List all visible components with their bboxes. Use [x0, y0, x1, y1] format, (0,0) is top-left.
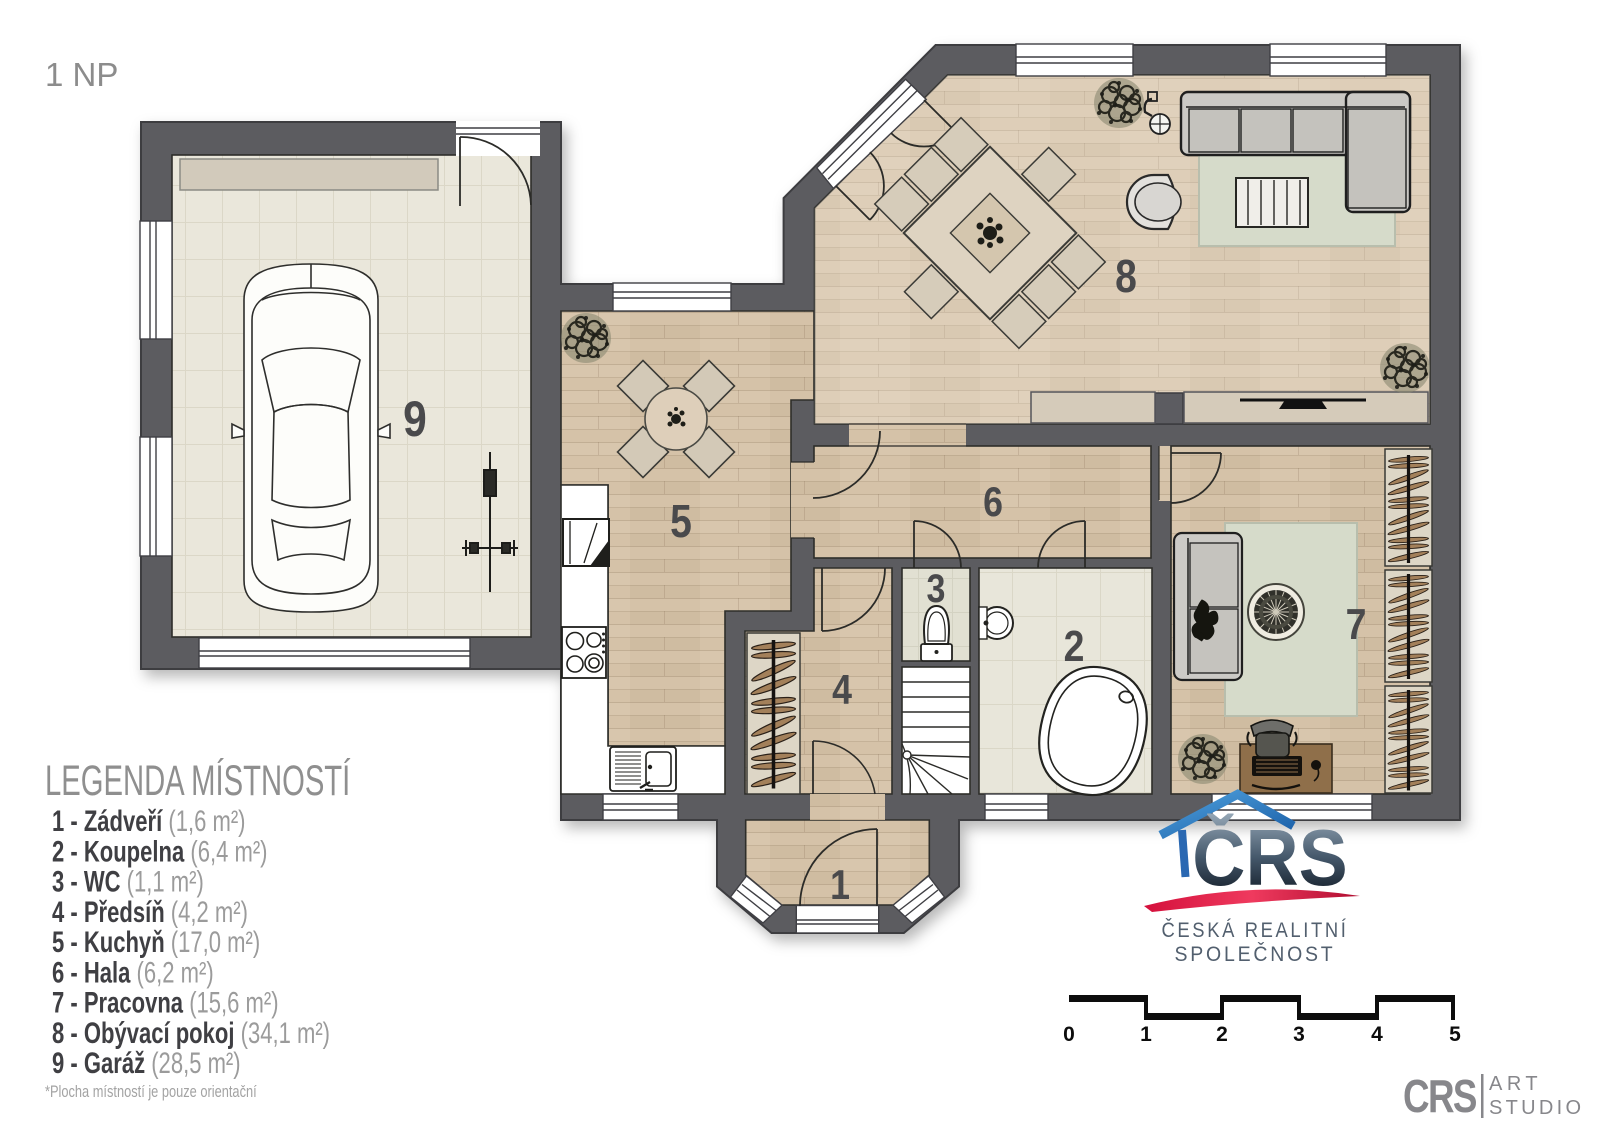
svg-text:9: 9 [403, 391, 427, 447]
svg-text:8: 8 [1115, 251, 1137, 303]
svg-text:5: 5 [1449, 1023, 1461, 1046]
svg-text:2 - Koupelna (6,4 m²): 2 - Koupelna (6,4 m²) [52, 834, 267, 868]
svg-text:LEGENDA MÍSTNOSTÍ: LEGENDA MÍSTNOSTÍ [45, 756, 351, 804]
svg-text:4 - Předsíň (4,2 m²): 4 - Předsíň (4,2 m²) [52, 894, 248, 928]
svg-text:1: 1 [1140, 1023, 1152, 1046]
svg-text:8 - Obývací pokoj (34,1 m²): 8 - Obývací pokoj (34,1 m²) [52, 1015, 330, 1049]
svg-text:4: 4 [1371, 1023, 1383, 1046]
svg-text:1: 1 [830, 862, 850, 908]
svg-text:3: 3 [927, 565, 946, 610]
svg-text:0: 0 [1063, 1023, 1075, 1046]
svg-text:ČRS: ČRS [1192, 813, 1347, 903]
svg-text:SPOLEČNOST: SPOLEČNOST [1175, 943, 1336, 966]
svg-text:CRS: CRS [1403, 1070, 1477, 1122]
svg-text:9 - Garáž (28,5 m²): 9 - Garáž (28,5 m²) [52, 1046, 241, 1080]
svg-text:STUDIO: STUDIO [1489, 1097, 1584, 1119]
svg-text:6 - Hala (6,2 m²): 6 - Hala (6,2 m²) [52, 955, 214, 989]
svg-text:7 - Pracovna (15,6 m²): 7 - Pracovna (15,6 m²) [52, 985, 279, 1019]
svg-text:1 - Zádveří (1,6 m²): 1 - Zádveří (1,6 m²) [52, 804, 246, 838]
svg-text:5 - Kuchyň (17,0 m²): 5 - Kuchyň (17,0 m²) [52, 925, 260, 959]
svg-text:2: 2 [1064, 621, 1085, 671]
svg-text:ČESKÁ REALITNÍ: ČESKÁ REALITNÍ [1162, 919, 1349, 942]
svg-text:2: 2 [1216, 1023, 1228, 1046]
svg-text:7: 7 [1346, 599, 1367, 649]
svg-text:1 NP: 1 NP [45, 56, 118, 93]
svg-text:3: 3 [1293, 1023, 1305, 1046]
svg-text:5: 5 [670, 496, 692, 548]
svg-text:3 - WC (1,1 m²): 3 - WC (1,1 m²) [52, 864, 204, 898]
svg-text:ART: ART [1489, 1073, 1542, 1095]
svg-text:4: 4 [832, 667, 852, 713]
svg-text:*Plocha místností je pouze ori: *Plocha místností je pouze orientační [45, 1082, 257, 1101]
svg-text:6: 6 [983, 479, 1003, 525]
